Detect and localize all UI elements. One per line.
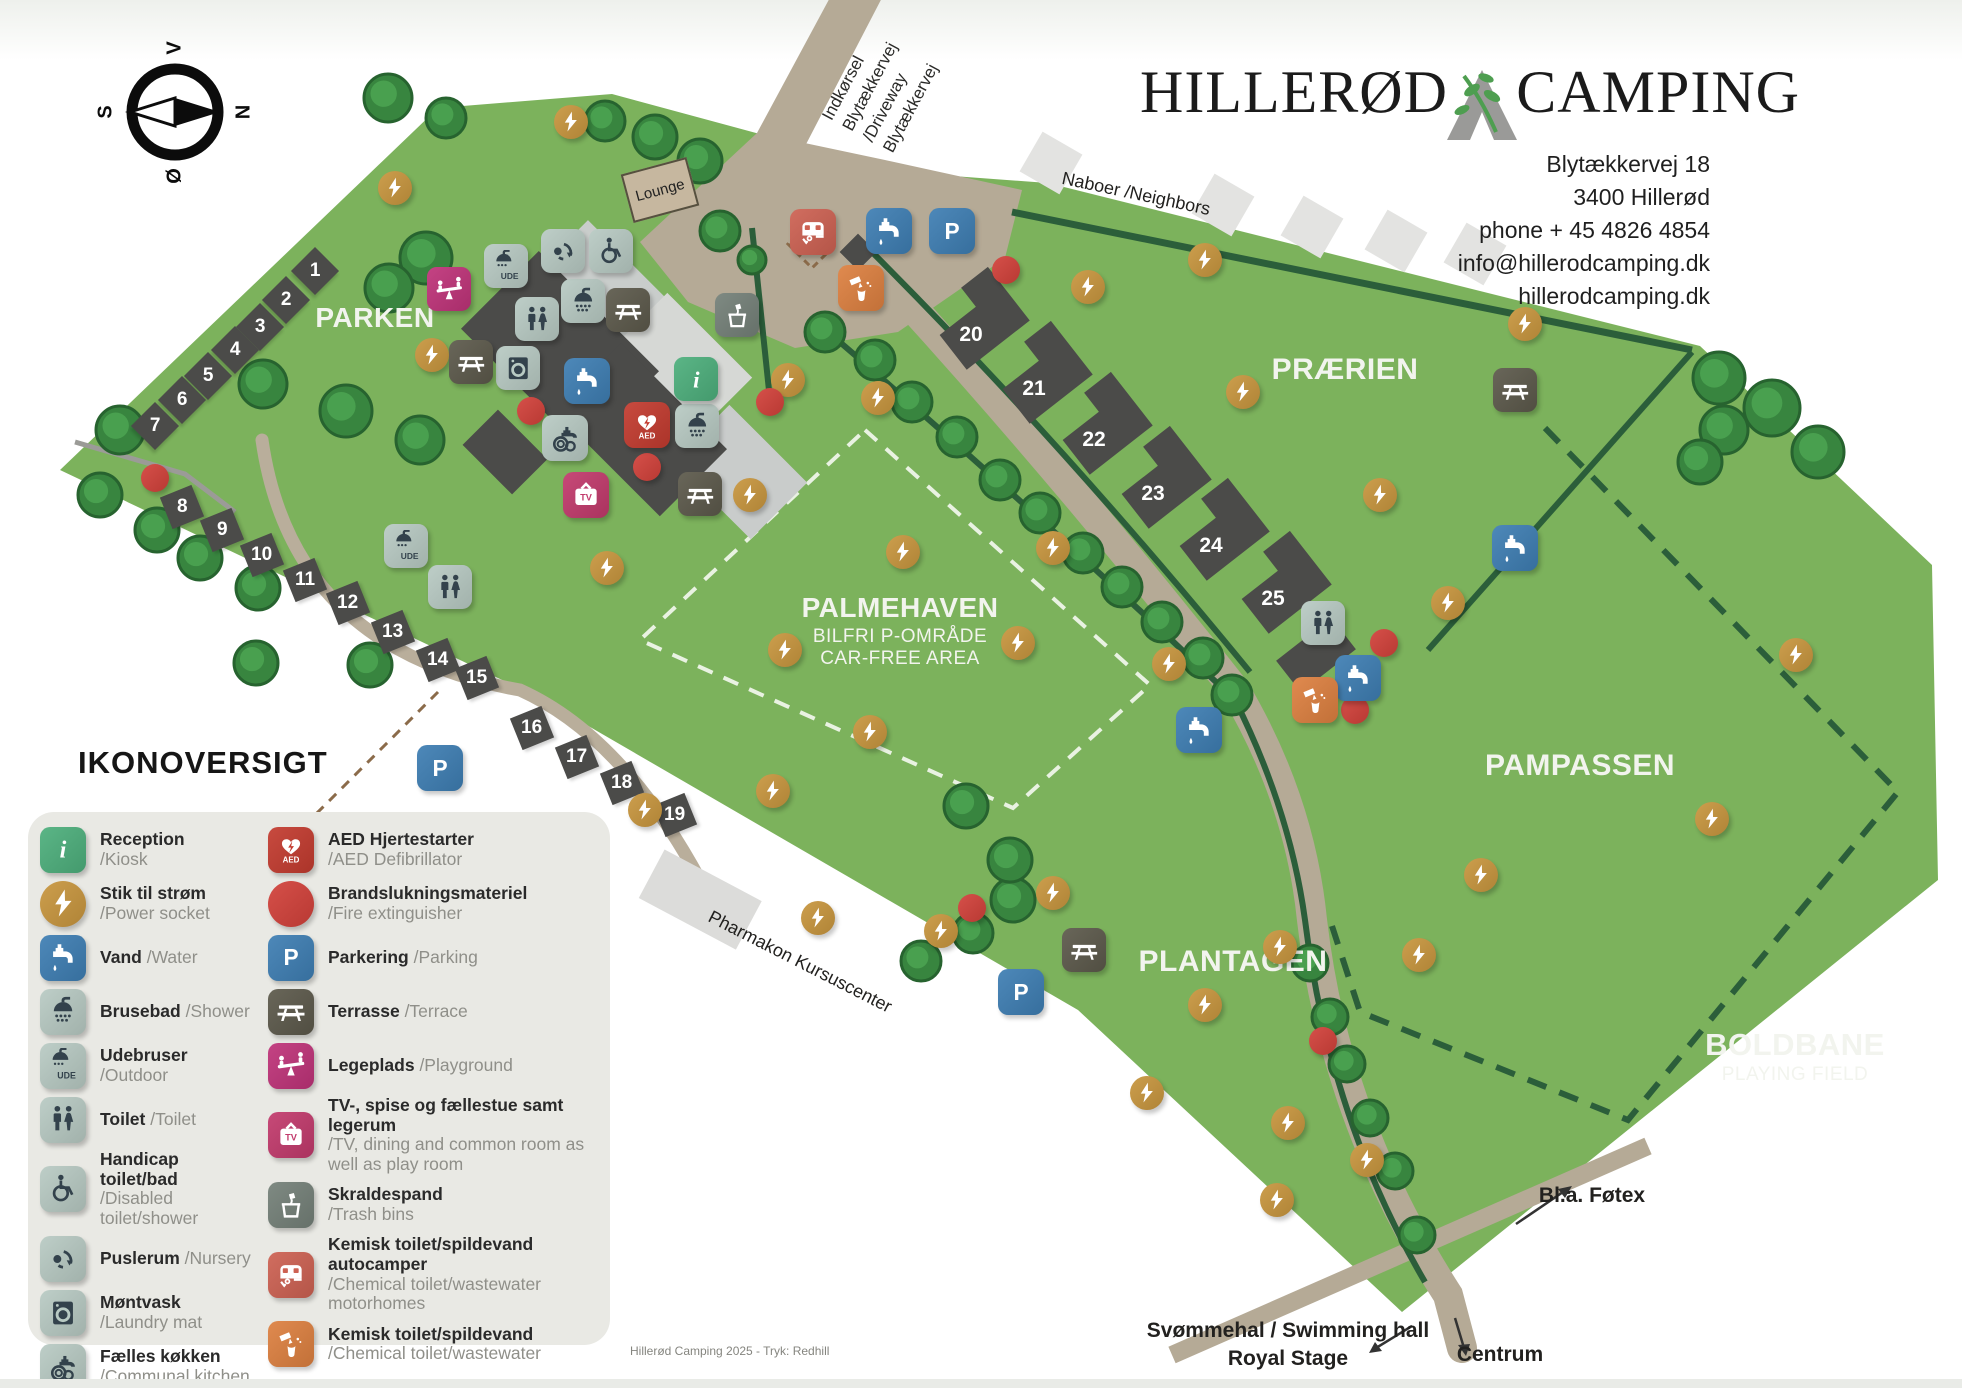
power-icon — [1431, 586, 1465, 620]
tree-icon — [988, 838, 1032, 882]
compass-south: S — [95, 105, 118, 118]
tree-icon — [1399, 1217, 1435, 1253]
nursery-icon — [40, 1236, 86, 1282]
tree-icon — [1792, 426, 1844, 478]
legend-item-aed: AEDAED Hjertestarter/AED Defibrillator — [268, 826, 600, 873]
legend-label: Brusebad /Shower — [100, 1002, 250, 1022]
terrace-icon — [268, 989, 314, 1035]
shower-icon — [40, 989, 86, 1035]
legend-item-playground: Legeplads /Playground — [268, 1042, 600, 1089]
cabin-number-24: 24 — [1199, 534, 1222, 558]
legend-item-reception: iReception/Kiosk — [40, 826, 258, 873]
compass-east: Ø — [164, 168, 187, 184]
red-icon — [268, 881, 314, 927]
playground-icon — [268, 1043, 314, 1089]
power-icon — [1363, 478, 1397, 512]
shower-ude-icon: UDE — [484, 244, 528, 288]
tree-icon — [1744, 380, 1800, 436]
cabin-number-22: 22 — [1082, 428, 1105, 452]
chem-waste-icon — [838, 265, 884, 311]
tree-icon — [700, 211, 740, 251]
power-icon — [801, 901, 835, 935]
svg-text:UDE: UDE — [401, 551, 419, 561]
power-icon — [1226, 375, 1260, 409]
power-icon — [853, 715, 887, 749]
svg-text:TV: TV — [285, 1133, 298, 1143]
legend-item-nursery: Puslerum /Nursery — [40, 1235, 258, 1282]
logo-text-left: HILLERØD — [1140, 58, 1448, 127]
laundry-icon — [40, 1290, 86, 1336]
region-boldbane: BOLDBANE — [1705, 1027, 1885, 1063]
region-palmehaven-sub1: BILFRI P-OMRÅDE — [813, 626, 987, 648]
fotex-label: Bl.a. Føtex — [1539, 1184, 1645, 1208]
wc-icon — [40, 1097, 86, 1143]
compass-north: N — [233, 105, 256, 119]
water-icon — [40, 935, 86, 981]
legend-label: Kemisk toilet/spildevand autocamper/Chem… — [328, 1235, 600, 1313]
legend-item-terrace: Terrasse /Terrace — [268, 988, 600, 1035]
power-icon — [1188, 243, 1222, 277]
power-icon — [378, 171, 412, 205]
chem-caravan-icon — [790, 209, 836, 255]
tree-icon — [396, 416, 444, 464]
page-edge — [0, 1379, 1962, 1388]
svg-text:P: P — [432, 755, 447, 781]
pitch-number: 15 — [466, 667, 487, 689]
tree-icon — [78, 473, 122, 517]
power-icon — [1001, 626, 1035, 660]
legend-label: TV-, spise og fællestue samt legerum/TV,… — [328, 1096, 600, 1174]
tree-icon — [991, 878, 1035, 922]
legend-title: IKONOVERSIGT — [78, 745, 328, 781]
reception-icon: i — [40, 827, 86, 873]
tree-icon — [364, 74, 412, 122]
tree-icon — [1329, 1046, 1365, 1082]
tree-icon — [1102, 567, 1142, 607]
pitch-number: 2 — [281, 289, 292, 311]
power-icon — [554, 105, 588, 139]
svg-text:AED: AED — [639, 431, 656, 440]
handicap-icon — [589, 229, 633, 273]
water-icon — [564, 358, 610, 404]
terrace-icon — [606, 288, 650, 332]
fire-extinguisher-icon — [1309, 1027, 1337, 1055]
legend-label: Kemisk toilet/spildevand/Chemical toilet… — [328, 1325, 541, 1364]
legend-item-shower: Brusebad /Shower — [40, 988, 258, 1035]
legend-item-trash: Skraldespand/Trash bins — [268, 1181, 600, 1228]
address-line: hillerodcamping.dk — [1458, 280, 1710, 313]
power-icon — [1071, 270, 1105, 304]
parking-icon: P — [417, 745, 463, 791]
legend-item-tv: TVTV-, spise og fællestue samt legerum/T… — [268, 1096, 600, 1174]
shower-ude-icon: UDE — [384, 524, 428, 568]
legend-label: Udebruser /Outdoor — [100, 1046, 258, 1085]
legend-label: Stik til strøm/Power socket — [100, 884, 210, 923]
power-icon — [1402, 938, 1436, 972]
legend-box: iReception/KioskStik til strøm/Power soc… — [28, 812, 610, 1345]
legend-item-parking: PParkering /Parking — [268, 934, 600, 981]
address-line: Blytækkervej 18 — [1458, 148, 1710, 181]
water-icon — [1176, 707, 1222, 753]
address-block: Blytækkervej 183400 Hillerødphone + 45 4… — [1458, 148, 1710, 313]
power-icon — [415, 338, 449, 372]
power-icon — [1036, 531, 1070, 565]
legend-item-handicap: Handicap toilet/bad/Disabled toilet/show… — [40, 1150, 258, 1228]
power-icon — [768, 633, 802, 667]
royal-stage-label: Royal Stage — [1228, 1347, 1348, 1371]
power-icon — [1350, 1143, 1384, 1177]
terrace-icon — [678, 472, 722, 516]
legend-item-shower_ude: UDEUdebruser /Outdoor — [40, 1042, 258, 1089]
tree-icon — [1678, 440, 1722, 484]
handicap-icon — [40, 1166, 86, 1212]
svg-text:UDE: UDE — [501, 271, 519, 281]
region-praerien: PRÆRIEN — [1272, 353, 1419, 387]
fire-extinguisher-icon — [141, 464, 169, 492]
power-icon — [590, 551, 624, 585]
legend-label: Parkering /Parking — [328, 948, 478, 968]
tree-icon — [1142, 602, 1182, 642]
region-parken: PARKEN — [315, 302, 434, 334]
tree-icon — [892, 382, 932, 422]
cabin-number-25: 25 — [1261, 587, 1284, 611]
pitch-number: 17 — [566, 746, 587, 768]
fire-extinguisher-icon — [517, 397, 545, 425]
svg-text:UDE: UDE — [57, 1071, 76, 1081]
pitch-number: 11 — [295, 569, 315, 591]
tree-icon — [585, 101, 625, 141]
legend-label: Møntvask/Laundry mat — [100, 1293, 202, 1332]
power-icon — [1263, 930, 1297, 964]
tree-icon — [944, 784, 988, 828]
power-icon — [1271, 1106, 1305, 1140]
kitchen-icon — [542, 415, 588, 461]
fire-extinguisher-icon — [992, 256, 1020, 284]
logo-text-right: CAMPING — [1516, 58, 1800, 127]
wc-icon — [515, 297, 559, 341]
legend-item-red: Brandslukningsmateriel/Fire extinguisher — [268, 880, 600, 927]
legend-label: Terrasse /Terrace — [328, 1002, 468, 1022]
terrace-icon — [1493, 368, 1537, 412]
swimming-hall-label: Svømmehal / Swimming hall — [1147, 1319, 1429, 1343]
fire-extinguisher-icon — [1370, 629, 1398, 657]
chem-waste-icon — [268, 1321, 314, 1367]
power-icon — [756, 774, 790, 808]
tree-icon — [1693, 352, 1745, 404]
playground-icon — [427, 267, 471, 311]
pitch-number: 10 — [251, 544, 272, 566]
legend-item-water: Vand /Water — [40, 934, 258, 981]
tree-icon — [980, 460, 1020, 500]
wc-icon — [1301, 601, 1345, 645]
pitch-number: 7 — [150, 415, 161, 437]
trash-icon — [268, 1182, 314, 1228]
tree-icon — [320, 385, 372, 437]
region-plantagen: PLANTAGEN — [1139, 945, 1328, 979]
parking-icon: P — [929, 208, 975, 254]
wc-icon — [428, 565, 472, 609]
shower-ude-icon: UDE — [40, 1043, 86, 1089]
legend-item-chem_caravan: Kemisk toilet/spildevand autocamper/Chem… — [268, 1235, 600, 1313]
power-icon — [628, 793, 662, 827]
tree-icon — [855, 340, 895, 380]
pitch-number: 3 — [255, 316, 266, 338]
pitch-number: 5 — [203, 365, 214, 387]
svg-text:i: i — [693, 366, 700, 392]
legend-label: Skraldespand/Trash bins — [328, 1185, 443, 1224]
power-icon — [886, 535, 920, 569]
power-icon — [733, 478, 767, 512]
power-icon — [1130, 1076, 1164, 1110]
tree-icon — [1183, 638, 1223, 678]
aed-icon: AED — [268, 827, 314, 873]
pitch-number: 4 — [230, 339, 241, 361]
tree-icon — [738, 246, 766, 274]
pitch-number: 13 — [382, 621, 403, 643]
power-icon — [1188, 988, 1222, 1022]
legend-label: Puslerum /Nursery — [100, 1249, 251, 1269]
water-icon — [1335, 655, 1381, 701]
trash-icon — [715, 293, 759, 337]
legend-label: Vand /Water — [100, 948, 198, 968]
centrum-label: Centrum — [1457, 1343, 1543, 1367]
svg-text:P: P — [283, 944, 298, 970]
pitch-number: 9 — [217, 519, 228, 541]
laundry-icon — [496, 346, 540, 390]
legend-label: Reception/Kiosk — [100, 830, 185, 869]
tree-icon — [1020, 493, 1060, 533]
legend-label: Handicap toilet/bad/Disabled toilet/show… — [100, 1150, 258, 1228]
chem-waste-icon — [1292, 677, 1338, 723]
legend-item-wc: Toilet /Toilet — [40, 1096, 258, 1143]
shower-icon — [675, 404, 719, 448]
svg-text:P: P — [944, 218, 959, 244]
svg-text:P: P — [1013, 979, 1028, 1005]
hillerod-camping-map: HILLERØD CAMPING Blytækkervej 183400 Hil… — [0, 0, 1962, 1388]
power-icon — [1779, 638, 1813, 672]
cabin-number-23: 23 — [1141, 482, 1164, 506]
tree-icon — [1352, 1100, 1388, 1136]
pitch-number: 1 — [310, 260, 321, 282]
tree-icon — [239, 360, 287, 408]
pitch-number: 16 — [521, 717, 542, 739]
shower-icon — [561, 279, 605, 323]
legend-label: Toilet /Toilet — [100, 1110, 196, 1130]
legend-item-power: Stik til strøm/Power socket — [40, 880, 258, 927]
pitch-number: 8 — [177, 496, 188, 518]
power-icon — [861, 381, 895, 415]
legend-label: Brandslukningsmateriel/Fire extinguisher — [328, 884, 527, 923]
logo: HILLERØD CAMPING — [1140, 58, 1800, 127]
compass-rose — [130, 69, 220, 155]
power-icon — [1695, 802, 1729, 836]
pitch-number: 6 — [177, 389, 188, 411]
power-icon — [1464, 858, 1498, 892]
tree-icon — [937, 417, 977, 457]
power-icon — [1260, 1183, 1294, 1217]
power-icon — [924, 914, 958, 948]
water-icon — [866, 208, 912, 254]
legend-column-left: iReception/KioskStik til strøm/Power soc… — [40, 826, 258, 1388]
tree-icon — [633, 115, 677, 159]
compass-west: V — [164, 41, 187, 54]
power-icon — [1152, 647, 1186, 681]
address-line: phone + 45 4826 4854 — [1458, 214, 1710, 247]
pitch-number: 14 — [427, 649, 448, 671]
power-icon — [1036, 876, 1070, 910]
nursery-icon — [541, 229, 585, 273]
pitch-number: 18 — [611, 772, 632, 794]
pitch-number: 12 — [337, 592, 358, 614]
svg-text:AED: AED — [283, 856, 300, 865]
legend-label: Legeplads /Playground — [328, 1056, 513, 1076]
legend-item-chem_waste: Kemisk toilet/spildevand/Chemical toilet… — [268, 1321, 600, 1368]
svg-text:i: i — [60, 838, 67, 864]
print-credit: Hillerød Camping 2025 - Tryk: Redhill — [630, 1344, 829, 1358]
tree-icon — [234, 641, 278, 685]
region-pampassen: PAMPASSEN — [1485, 749, 1675, 783]
chem-caravan-icon — [268, 1252, 314, 1298]
power-icon — [40, 881, 86, 927]
reception-icon: i — [674, 357, 718, 401]
svg-text:TV: TV — [580, 492, 593, 502]
fire-extinguisher-icon — [633, 453, 661, 481]
parking-icon: P — [998, 969, 1044, 1015]
region-palmehaven: PALMEHAVEN — [802, 592, 999, 624]
aed-icon: AED — [624, 402, 670, 448]
legend-column-right: AEDAED Hjertestarter/AED DefibrillatorBr… — [268, 826, 600, 1368]
legend-label: AED Hjertestarter/AED Defibrillator — [328, 830, 474, 869]
fire-extinguisher-icon — [958, 894, 986, 922]
region-palmehaven-sub2: CAR-FREE AREA — [820, 648, 980, 670]
region-boldbane-sub: PLAYING FIELD — [1722, 1064, 1869, 1086]
terrace-icon — [1062, 928, 1106, 972]
parking-icon: P — [268, 935, 314, 981]
pitch-number: 19 — [664, 804, 685, 826]
tv-icon: TV — [268, 1112, 314, 1158]
legend-item-laundry: Møntvask/Laundry mat — [40, 1289, 258, 1336]
tv-icon: TV — [563, 472, 609, 518]
cabin-number-20: 20 — [959, 323, 982, 347]
power-icon — [1508, 307, 1542, 341]
tree-icon — [805, 312, 845, 352]
fire-extinguisher-icon — [756, 388, 784, 416]
address-line: 3400 Hillerød — [1458, 181, 1710, 214]
water-icon — [1492, 525, 1538, 571]
terrace-icon — [449, 340, 493, 384]
address-line: info@hillerodcamping.dk — [1458, 247, 1710, 280]
cabin-number-21: 21 — [1022, 377, 1045, 401]
tree-icon — [426, 98, 466, 138]
